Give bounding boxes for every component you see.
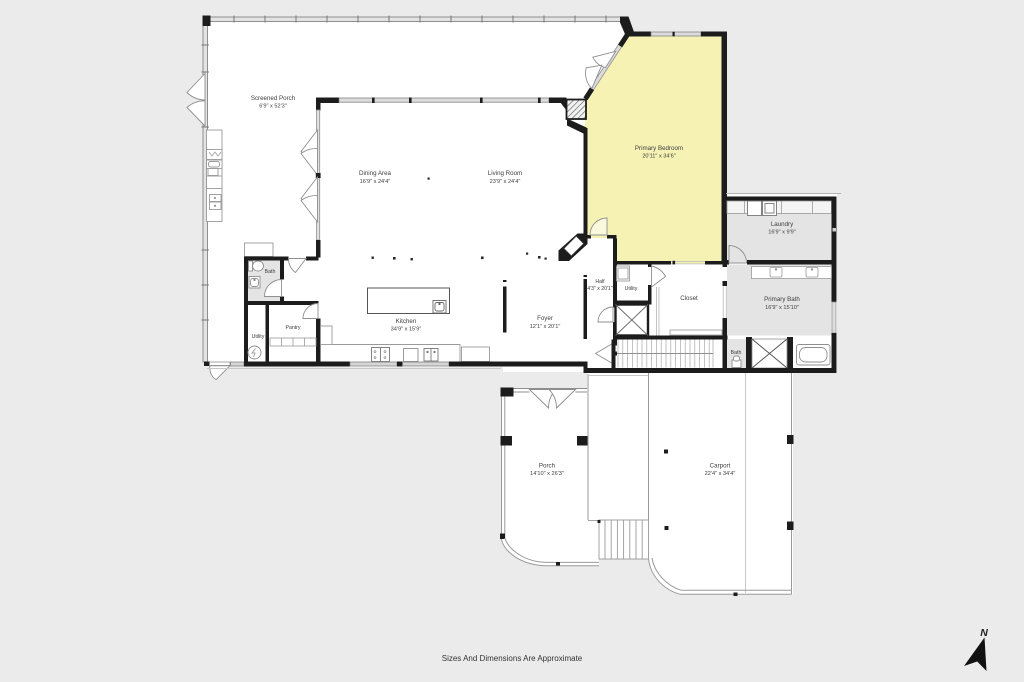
svg-text:4'3" x 20'1": 4'3" x 20'1"	[587, 286, 613, 292]
svg-text:16'9" x 9'9": 16'9" x 9'9"	[768, 230, 796, 236]
svg-text:16'9" x 24'4": 16'9" x 24'4"	[360, 179, 391, 185]
svg-text:Pantry: Pantry	[286, 325, 301, 331]
svg-text:Porch: Porch	[539, 463, 556, 470]
svg-text:Laundry: Laundry	[771, 221, 794, 228]
svg-text:Kitchen: Kitchen	[396, 318, 417, 325]
svg-text:6'9" x 52'3": 6'9" x 52'3"	[259, 104, 287, 110]
svg-text:Foyer: Foyer	[537, 315, 553, 322]
svg-text:Half: Half	[595, 279, 605, 285]
svg-text:Living Room: Living Room	[488, 170, 522, 177]
svg-text:Screened Porch: Screened Porch	[251, 95, 296, 102]
svg-text:20'11" x 34'6": 20'11" x 34'6"	[642, 154, 675, 160]
svg-text:Bath: Bath	[265, 269, 276, 275]
svg-text:Bath: Bath	[731, 350, 742, 356]
svg-text:34'9" x 15'9": 34'9" x 15'9"	[391, 327, 422, 333]
svg-text:23'9" x 24'4": 23'9" x 24'4"	[490, 179, 521, 185]
svg-text:Dining Area: Dining Area	[359, 170, 392, 177]
svg-text:Utility: Utility	[625, 286, 638, 292]
svg-text:12'1" x 20'1": 12'1" x 20'1"	[530, 324, 561, 330]
svg-text:14'10" x 26'3": 14'10" x 26'3"	[530, 471, 564, 477]
svg-text:Carport: Carport	[710, 463, 731, 470]
svg-text:Primary Bedroom: Primary Bedroom	[635, 145, 683, 152]
svg-text:N: N	[980, 627, 988, 639]
svg-text:22'4" x 34'4": 22'4" x 34'4"	[705, 471, 736, 477]
svg-text:Utility: Utility	[252, 334, 265, 340]
svg-text:Sizes And Dimensions Are Appro: Sizes And Dimensions Are Approximate	[442, 654, 583, 663]
svg-text:Primary Bath: Primary Bath	[764, 296, 800, 303]
svg-text:16'9" x 15'10": 16'9" x 15'10"	[765, 305, 799, 311]
svg-text:Closet: Closet	[680, 295, 698, 302]
